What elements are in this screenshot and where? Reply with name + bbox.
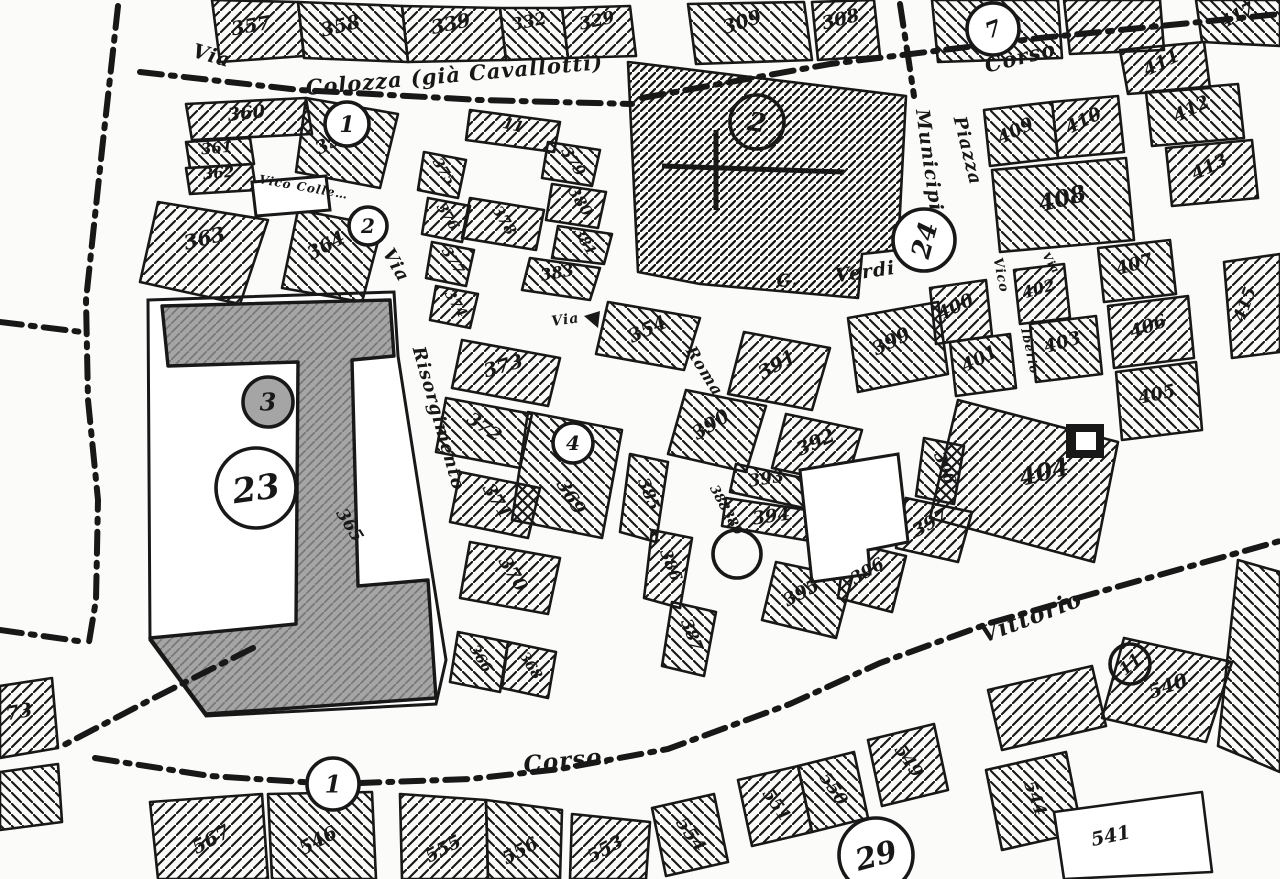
parcel-number-362: 362	[202, 163, 235, 184]
circled-number-3: 3	[260, 388, 277, 417]
cadastral-map-scan: 3573583393323293093084174114124134094104…	[0, 0, 1280, 879]
circled-number-23: 23	[229, 466, 282, 512]
courtyard-square-inner	[1076, 432, 1096, 450]
parcel-number-361: 361	[200, 138, 233, 159]
street-label-g: G.	[776, 270, 800, 292]
parcel-unlabeled	[0, 764, 62, 830]
circled-number-4: 4	[566, 431, 580, 455]
circled-number-1: 1	[339, 112, 354, 138]
circled-number-2: 2	[360, 214, 375, 238]
parcel-number-73: 73	[4, 699, 34, 725]
map-canvas: 3573583393323293093084174114124134094104…	[0, 0, 1280, 879]
parcel-number-360: 360	[227, 101, 267, 126]
circled-number-1: 1	[325, 770, 342, 799]
